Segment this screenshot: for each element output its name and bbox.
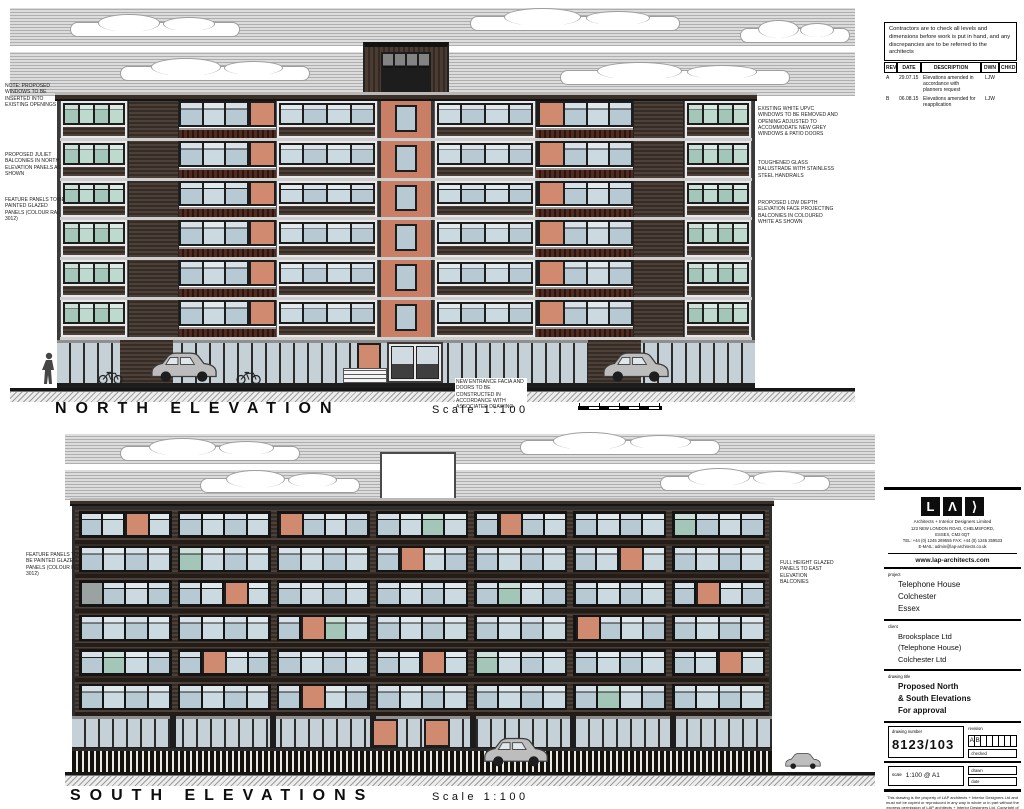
window-pane [328,105,350,123]
window-pane [204,302,225,324]
window-band [63,302,125,324]
window-pane [181,262,202,284]
window-pane [103,514,123,536]
feature-panel [202,652,225,674]
window-pane [576,652,596,674]
feature-panel [538,222,562,244]
core-bay [378,181,433,218]
window-pane [439,105,461,123]
car-silhouette [782,748,824,774]
facade-floor [75,613,769,648]
window-pane [378,617,398,639]
brick-spandrel [63,326,125,335]
window-pane [742,548,762,570]
feature-panel [279,514,302,536]
glazed-bay [79,511,172,538]
feature-panel [421,652,444,674]
number-revision-row: drawing number 8123/103 revision AB chec… [884,723,1021,763]
window-pane [622,617,642,639]
rev-date: 29.07.15 [897,73,921,94]
drawn-date-box: drawn date [968,766,1017,786]
window-pane [697,686,717,708]
window-pane [328,224,350,242]
window-band [179,181,276,207]
win-bay [684,220,752,257]
revision-cell [1011,736,1016,746]
window-pane [126,548,146,570]
col-header-rev: REV [884,63,897,73]
window-pane [696,652,716,674]
window-pane [347,514,367,536]
brick-pier [633,141,683,178]
window-pane [565,183,586,205]
win-bay [684,141,752,178]
balcony-balustrade [179,207,276,217]
window-band [536,101,633,127]
brick-pier [128,181,178,218]
window-pane [227,652,247,674]
window-band [179,220,276,246]
window-pane [462,264,484,282]
feature-panel [619,548,642,570]
balcony-balustrade [179,287,276,297]
window-pane [499,548,519,570]
window-pane [302,583,322,605]
glazed-bay [277,684,370,711]
window-pane [65,304,78,322]
window-pane [704,224,717,242]
window-pane [719,145,732,163]
scale-bar [578,406,662,410]
window-pane [689,105,702,123]
window-pane [225,514,245,536]
window-pane [601,617,621,639]
window-pane [588,302,609,324]
window-pane [523,514,543,536]
window-pane [65,264,78,282]
brick-spandrel [687,127,749,136]
window-pane [689,185,702,203]
window-pane [621,652,641,674]
brick-spandrel [63,286,125,295]
balc-bay [536,260,633,297]
window-pane [203,686,223,708]
title-block: LΛ⟩ Architects + Interior Designers Limi… [884,487,1021,809]
window-pane [82,514,102,536]
window-band [536,300,633,326]
core-bay [378,101,433,138]
core-window [395,304,417,331]
window-pane [104,617,124,639]
window-pane [279,548,299,570]
window-pane [598,514,618,536]
window-pane [324,548,344,570]
window-pane [378,686,398,708]
facade-floor [60,300,752,340]
south-ground-hatch [65,775,875,786]
glazed-bay [474,615,567,642]
brick-spandrel [279,326,376,335]
feature-panel [224,583,247,605]
win-bay [434,181,537,218]
window-pane [675,548,695,570]
brick-spandrel [63,167,125,176]
balc-bay [536,220,633,257]
window-pane [304,185,326,203]
window-pane [180,514,200,536]
brick-spandrel [687,286,749,295]
balcony-balustrade [536,128,633,138]
window-band [687,143,749,165]
window-pane [378,548,398,570]
architect-panel: LΛ⟩ Architects + Interior Designers Limi… [884,487,1021,569]
window-pane [477,686,497,708]
window-pane [734,185,747,203]
window-pane [510,145,532,163]
window-pane [565,262,586,284]
col-header-dwn: DWN [981,63,999,73]
south-elevation-scale: Scale 1:100 [432,791,529,803]
entrance-door [416,346,439,379]
north-roof-parapet [55,92,757,101]
window-pane [544,548,564,570]
window-pane [719,224,732,242]
brick-pier [633,220,683,257]
feature-panel [538,262,562,284]
balcony-balustrade [536,327,633,337]
window-pane [304,105,326,123]
window-pane [734,105,747,123]
car-silhouette [478,730,554,774]
window-pane [643,583,663,605]
window-pane [226,143,247,165]
window-band [63,262,125,284]
brick-pier [633,101,683,138]
feature-panel [538,302,562,324]
window-pane [734,264,747,282]
window-pane [719,264,732,282]
window-pane [204,183,225,205]
window-pane [445,583,465,605]
window-pane [477,617,497,639]
window-pane [689,145,702,163]
drawn-box: drawn [968,766,1017,775]
feature-panel [249,143,273,165]
bicycle-silhouette [235,368,263,384]
brick-spandrel [437,286,534,295]
window-pane [110,185,123,203]
brick-spandrel [63,127,125,136]
scale-value: 1:100 @ A1 [906,772,940,779]
window-pane [328,304,350,322]
window-pane [621,583,641,605]
window-pane [720,514,740,536]
glazed-bay [672,511,765,538]
window-pane [697,548,717,570]
revision-grid: AB [968,735,1017,747]
window-pane [104,652,124,674]
window-pane [439,304,461,322]
window-pane [565,302,586,324]
rev-chkd [999,94,1017,109]
drawing-number-box: drawing number 8123/103 [888,726,964,758]
window-band [279,183,376,205]
window-pane [279,686,299,708]
window-pane [82,548,102,570]
balcony-balustrade [179,168,276,178]
project-line: Essex [888,603,1017,615]
scale-label: scale [892,772,902,777]
window-pane [720,617,740,639]
window-pane [80,264,93,282]
window-pane [302,548,322,570]
window-pane [149,617,169,639]
window-pane [643,652,663,674]
phone-line: TEL: +44 (0) 1245 269555 FAX: +44 (0) 12… [888,538,1017,544]
cloud [560,70,790,85]
glazed-bay [178,546,271,573]
win-bay [60,181,128,218]
window-pane [477,548,497,570]
cloud [120,66,310,81]
window-pane [675,514,695,536]
window-band [63,143,125,165]
core-window [395,224,417,251]
rev-dwn: LJW [981,94,999,109]
entrance-door [391,346,414,379]
window-pane [477,652,497,674]
cloud [520,440,720,455]
window-pane [689,304,702,322]
balcony-balustrade [179,128,276,138]
window-band [687,183,749,205]
glazed-bay [573,649,666,676]
balcony-balustrade [536,207,633,217]
window-pane [80,185,93,203]
glazed-bay [79,615,172,642]
window-pane [486,304,508,322]
core-window [395,105,417,132]
window-pane [110,145,123,163]
window-pane [544,617,564,639]
glazed-bay [474,649,567,676]
window-pane [326,617,346,639]
window-pane [401,583,421,605]
window-pane [110,264,123,282]
annotation-note: TOUGHENED GLASS BALUSTRADE WITH STAINLES… [758,160,838,179]
window-pane [352,185,374,203]
window-pane [180,583,200,605]
bicycle-silhouette [97,368,125,384]
south-roof-tower [380,452,456,504]
window-pane [510,224,532,242]
glazed-bay [178,615,271,642]
window-pane [675,617,695,639]
win-bay [276,141,379,178]
window-pane [522,617,542,639]
window-pane [439,145,461,163]
cloud [120,446,300,461]
win-bay [684,101,752,138]
window-band [536,220,633,246]
window-pane [82,652,102,674]
brick-pier [128,220,178,257]
window-pane [180,652,200,674]
brick-spandrel [279,286,376,295]
window-pane [621,514,641,536]
window-pane [477,514,497,536]
window-pane [689,264,702,282]
win-bay [276,300,379,337]
window-pane [95,224,108,242]
brick-pier [128,260,178,297]
window-pane [675,686,695,708]
window-pane [588,143,609,165]
balc-bay [179,300,276,337]
window-pane [598,652,618,674]
brick-spandrel [437,127,534,136]
window-pane [110,224,123,242]
facade-floor [60,260,752,300]
window-pane [576,514,596,536]
south-building-facade [72,506,772,716]
window-pane [181,183,202,205]
facade-floor [75,647,769,682]
client-label: client [888,624,1017,629]
window-pane [126,652,146,674]
glazed-bay [573,546,666,573]
boundary-fence [72,748,772,774]
glazed-bay [79,684,172,711]
window-pane [226,222,247,244]
window-pane [445,514,465,536]
rev-dwn: LJW [981,73,999,94]
balcony-balustrade [536,247,633,257]
win-bay [60,300,128,337]
window-pane [181,302,202,324]
window-pane [445,686,465,708]
window-pane [110,304,123,322]
window-pane [126,686,146,708]
window-pane [719,105,732,123]
win-bay [434,260,537,297]
revision-row: B 06.08.15 Elevations amended for reappl… [884,94,1017,109]
north-building-facade [57,101,755,340]
facade-floor [60,101,752,141]
window-band [536,181,633,207]
logo-square: Λ [943,497,962,516]
window-pane [675,652,695,674]
window-pane [378,514,398,536]
feature-panel [125,514,148,536]
window-pane [597,548,617,570]
window-pane [610,183,631,205]
window-pane [610,143,631,165]
window-pane [352,304,374,322]
feature-panel [499,514,522,536]
balcony-balustrade [179,247,276,257]
feature-panel [538,103,562,125]
window-pane [742,514,762,536]
glazed-bay [376,580,469,607]
rev-id: B [884,94,897,109]
window-pane [352,105,374,123]
feature-panel [576,617,599,639]
north-elevation-scale: Scale 1:100 [432,404,529,416]
win-bay [60,141,128,178]
brick-pier [633,260,683,297]
win-bay [60,220,128,257]
window-band [179,141,276,167]
window-pane [328,145,350,163]
glazed-bay [474,546,567,573]
glazed-bay [573,615,666,642]
website: www.lap-architects.com [888,553,1017,564]
window-pane [225,686,245,708]
feature-panel [538,143,562,165]
window-pane [522,686,542,708]
facade-floor [75,682,769,717]
win-bay [276,220,379,257]
window-pane [423,583,443,605]
window-pane [720,548,740,570]
balc-bay [179,181,276,218]
win-bay [60,101,128,138]
window-band [536,141,633,167]
balc-bay [179,141,276,178]
window-pane [302,652,322,674]
window-pane [522,548,542,570]
feature-panel [249,262,273,284]
window-pane [95,145,108,163]
window-pane [248,548,268,570]
window-pane [204,222,225,244]
rev-id: A [884,73,897,94]
window-pane [279,583,299,605]
feature-panel [538,183,562,205]
car-silhouette [145,349,223,385]
window-pane [203,617,223,639]
core-bay [378,300,433,337]
cloud [740,28,850,43]
window-pane [462,185,484,203]
win-bay [434,300,537,337]
window-pane [742,686,762,708]
window-pane [423,617,443,639]
glazed-bay [376,684,469,711]
window-pane [643,686,663,708]
logo-square: ⟩ [965,497,984,516]
window-pane [226,262,247,284]
window-pane [204,262,225,284]
drawing-title-label: drawing title [888,674,1017,679]
client-line: Brooksplace Ltd [888,631,1017,643]
window-band [437,143,534,165]
firm-name: Architects + Interior Designers Limited [888,519,1017,524]
firm-address: 123 NEW LONDON ROAD, CHELMSFORD, ESSEX, … [888,526,1017,550]
window-pane [522,652,542,674]
window-pane [226,302,247,324]
window-pane [486,185,508,203]
glazed-bay [178,684,271,711]
win-bay [684,260,752,297]
col-header-date: DATE [897,63,921,73]
win-bay [276,181,379,218]
window-pane [180,548,200,570]
window-pane [249,652,269,674]
window-pane [249,583,269,605]
window-pane [486,224,508,242]
